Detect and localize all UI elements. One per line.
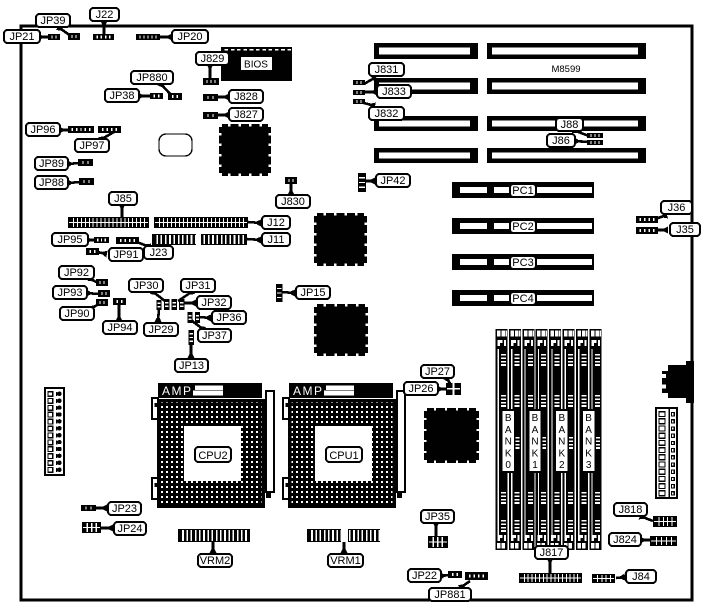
svg-text:J829: J829 — [201, 53, 225, 65]
svg-text:JP39: JP39 — [40, 15, 65, 27]
svg-text:JP95: JP95 — [57, 234, 82, 246]
svg-text:K: K — [585, 448, 592, 459]
svg-text:JP93: JP93 — [57, 287, 82, 299]
svg-text:A: A — [558, 425, 565, 436]
svg-text:JP27: JP27 — [425, 366, 450, 378]
svg-text:BIOS: BIOS — [244, 60, 268, 71]
svg-text:B: B — [585, 413, 592, 424]
svg-text:JP21: JP21 — [9, 31, 34, 43]
svg-text:J12: J12 — [267, 217, 285, 229]
svg-text:J88: J88 — [561, 119, 579, 131]
svg-text:K: K — [558, 448, 565, 459]
svg-text:JP37: JP37 — [202, 330, 227, 342]
svg-text:PC1: PC1 — [512, 185, 533, 197]
svg-text:JP89: JP89 — [39, 158, 64, 170]
svg-text:J11: J11 — [268, 234, 285, 246]
svg-text:J824: J824 — [613, 534, 637, 546]
svg-text:JP20: JP20 — [177, 31, 202, 43]
svg-text:JP32: JP32 — [201, 297, 226, 309]
svg-text:J831: J831 — [375, 64, 399, 76]
svg-text:JP31: JP31 — [185, 280, 210, 292]
svg-text:A: A — [532, 425, 539, 436]
svg-text:0: 0 — [505, 460, 511, 471]
svg-text:J36: J36 — [668, 202, 686, 214]
svg-text:J833: J833 — [382, 86, 406, 98]
svg-text:B: B — [558, 413, 565, 424]
svg-text:AMP: AMP — [162, 384, 193, 398]
svg-text:PC4: PC4 — [512, 293, 533, 305]
svg-text:VRM2: VRM2 — [200, 555, 231, 567]
svg-text:CPU2: CPU2 — [198, 450, 227, 462]
svg-text:2: 2 — [559, 460, 565, 471]
svg-text:J22: J22 — [96, 9, 114, 21]
svg-text:A: A — [585, 425, 592, 436]
svg-text:JP94: JP94 — [107, 322, 132, 334]
svg-text:JP26: JP26 — [408, 383, 433, 395]
svg-text:VRM1: VRM1 — [330, 555, 361, 567]
svg-text:JP90: JP90 — [64, 308, 89, 320]
svg-text:J827: J827 — [234, 109, 258, 121]
svg-text:A: A — [505, 425, 512, 436]
svg-text:JP97: JP97 — [79, 140, 104, 152]
svg-text:JP30: JP30 — [133, 280, 158, 292]
svg-text:JP36: JP36 — [216, 312, 241, 324]
svg-text:JP13: JP13 — [179, 360, 204, 372]
svg-text:3: 3 — [586, 460, 592, 471]
svg-text:PC3: PC3 — [512, 257, 533, 269]
svg-text:JP92: JP92 — [64, 267, 89, 279]
svg-text:CPU1: CPU1 — [329, 450, 358, 462]
svg-text:JP880: JP880 — [136, 72, 167, 84]
svg-text:JP42: JP42 — [380, 175, 405, 187]
svg-text:JP881: JP881 — [434, 589, 465, 601]
svg-text:PC2: PC2 — [512, 221, 533, 233]
svg-text:B: B — [532, 413, 539, 424]
svg-text:K: K — [505, 448, 512, 459]
svg-text:N: N — [558, 437, 565, 448]
svg-text:J830: J830 — [281, 196, 305, 208]
svg-text:1: 1 — [532, 460, 538, 471]
svg-text:JP22: JP22 — [412, 570, 437, 582]
svg-text:J84: J84 — [632, 571, 650, 583]
svg-text:JP24: JP24 — [117, 523, 142, 535]
svg-text:J23: J23 — [150, 247, 168, 259]
svg-text:J817: J817 — [540, 547, 564, 559]
svg-text:J85: J85 — [114, 193, 132, 205]
svg-text:JP29: JP29 — [148, 324, 173, 336]
svg-text:J35: J35 — [676, 224, 694, 236]
svg-text:N: N — [585, 437, 592, 448]
svg-text:JP15: JP15 — [300, 287, 325, 299]
svg-text:JP38: JP38 — [109, 90, 134, 102]
svg-text:J818: J818 — [619, 504, 643, 516]
svg-text:K: K — [532, 448, 539, 459]
svg-text:JP23: JP23 — [112, 503, 137, 515]
svg-text:JP88: JP88 — [39, 177, 64, 189]
svg-text:N: N — [531, 437, 538, 448]
svg-text:J832: J832 — [375, 108, 399, 120]
svg-text:AMP: AMP — [293, 384, 324, 398]
svg-text:M8599: M8599 — [551, 64, 580, 75]
svg-text:JP96: JP96 — [30, 124, 55, 136]
svg-text:J828: J828 — [234, 91, 258, 103]
svg-text:N: N — [505, 437, 512, 448]
svg-text:JP35: JP35 — [425, 511, 450, 523]
svg-text:JP91: JP91 — [113, 249, 138, 261]
svg-text:B: B — [505, 413, 512, 424]
svg-text:J86: J86 — [552, 135, 570, 147]
